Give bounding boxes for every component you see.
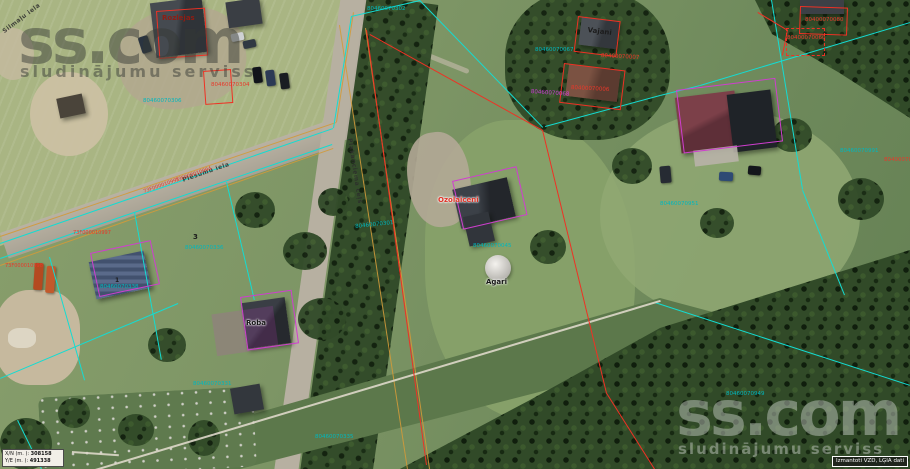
parcel-number: 80460070336 — [185, 246, 224, 252]
parcel-number: 80460070951 — [660, 202, 699, 208]
parcel-number: 80460070045 — [473, 244, 512, 250]
parcel-number: 80460070331 — [193, 382, 232, 388]
coordinate-x-value: 308158 — [31, 451, 52, 457]
annotation-layer: Silmaļu ielaPlēsumu ielaPlakanciema ceļš… — [0, 0, 910, 469]
place-label-agari: Agari — [486, 279, 507, 286]
coordinate-y-label: Y/E (m. ): — [5, 458, 28, 464]
survey-point-number: 73F000010998 — [5, 264, 43, 269]
parcel-number-red: 80400070006 — [571, 86, 610, 94]
parcel-number-magenta: 80460070068 — [531, 90, 570, 98]
map-attribution: Izmantoti VZD, LĢIA dati — [832, 456, 908, 467]
coordinate-x-label: X/N (m. ): — [5, 451, 29, 457]
coordinate-x-row: X/N (m. ): 308158 — [5, 451, 61, 458]
house-number-3: 3 — [193, 234, 198, 241]
parcel-number: 80460070949 — [726, 392, 765, 398]
parcel-number-red: 80400070080 — [805, 18, 844, 24]
parcel-number: 80460070991 — [840, 149, 879, 155]
place-label-roba: Roba — [246, 320, 266, 327]
parcel-number: 80460070335 — [315, 435, 354, 441]
survey-point-number: 73F000010997 — [73, 231, 111, 236]
aerial-map-canvas[interactable]: Silmaļu ielaPlēsumu ielaPlakanciema ceļš… — [0, 0, 910, 469]
parcel-number-red: 80400070991 — [884, 158, 910, 164]
parcel-number-red: 80400070060 — [787, 36, 826, 42]
place-label-ozolaiceni: Ozolaiceni — [438, 197, 479, 204]
parcel-number: 80460070302 — [367, 7, 406, 13]
coordinate-y-value: 491338 — [30, 458, 51, 464]
parcel-number: 80460070338 — [100, 285, 139, 291]
place-label-rozlejas: Rozlejas — [162, 15, 195, 22]
place-label-vajani: Vajani — [587, 27, 612, 37]
street-label-plakanciema-cels: Plakanciema ceļš — [346, 138, 362, 204]
parcel-number-red: 80400070007 — [601, 54, 640, 62]
parcel-number: 80460070306 — [143, 99, 182, 105]
coordinate-readout: X/N (m. ): 308158 Y/E (m. ): 491338 — [2, 449, 64, 467]
coordinate-y-row: Y/E (m. ): 491338 — [5, 458, 61, 465]
parcel-number-red: 80460070304 — [211, 83, 250, 89]
parcel-number: 80460070067 — [535, 48, 574, 54]
street-label-silmalu-iela: Silmaļu iela — [2, 3, 42, 35]
parcel-number: 80460070301 — [355, 221, 394, 230]
